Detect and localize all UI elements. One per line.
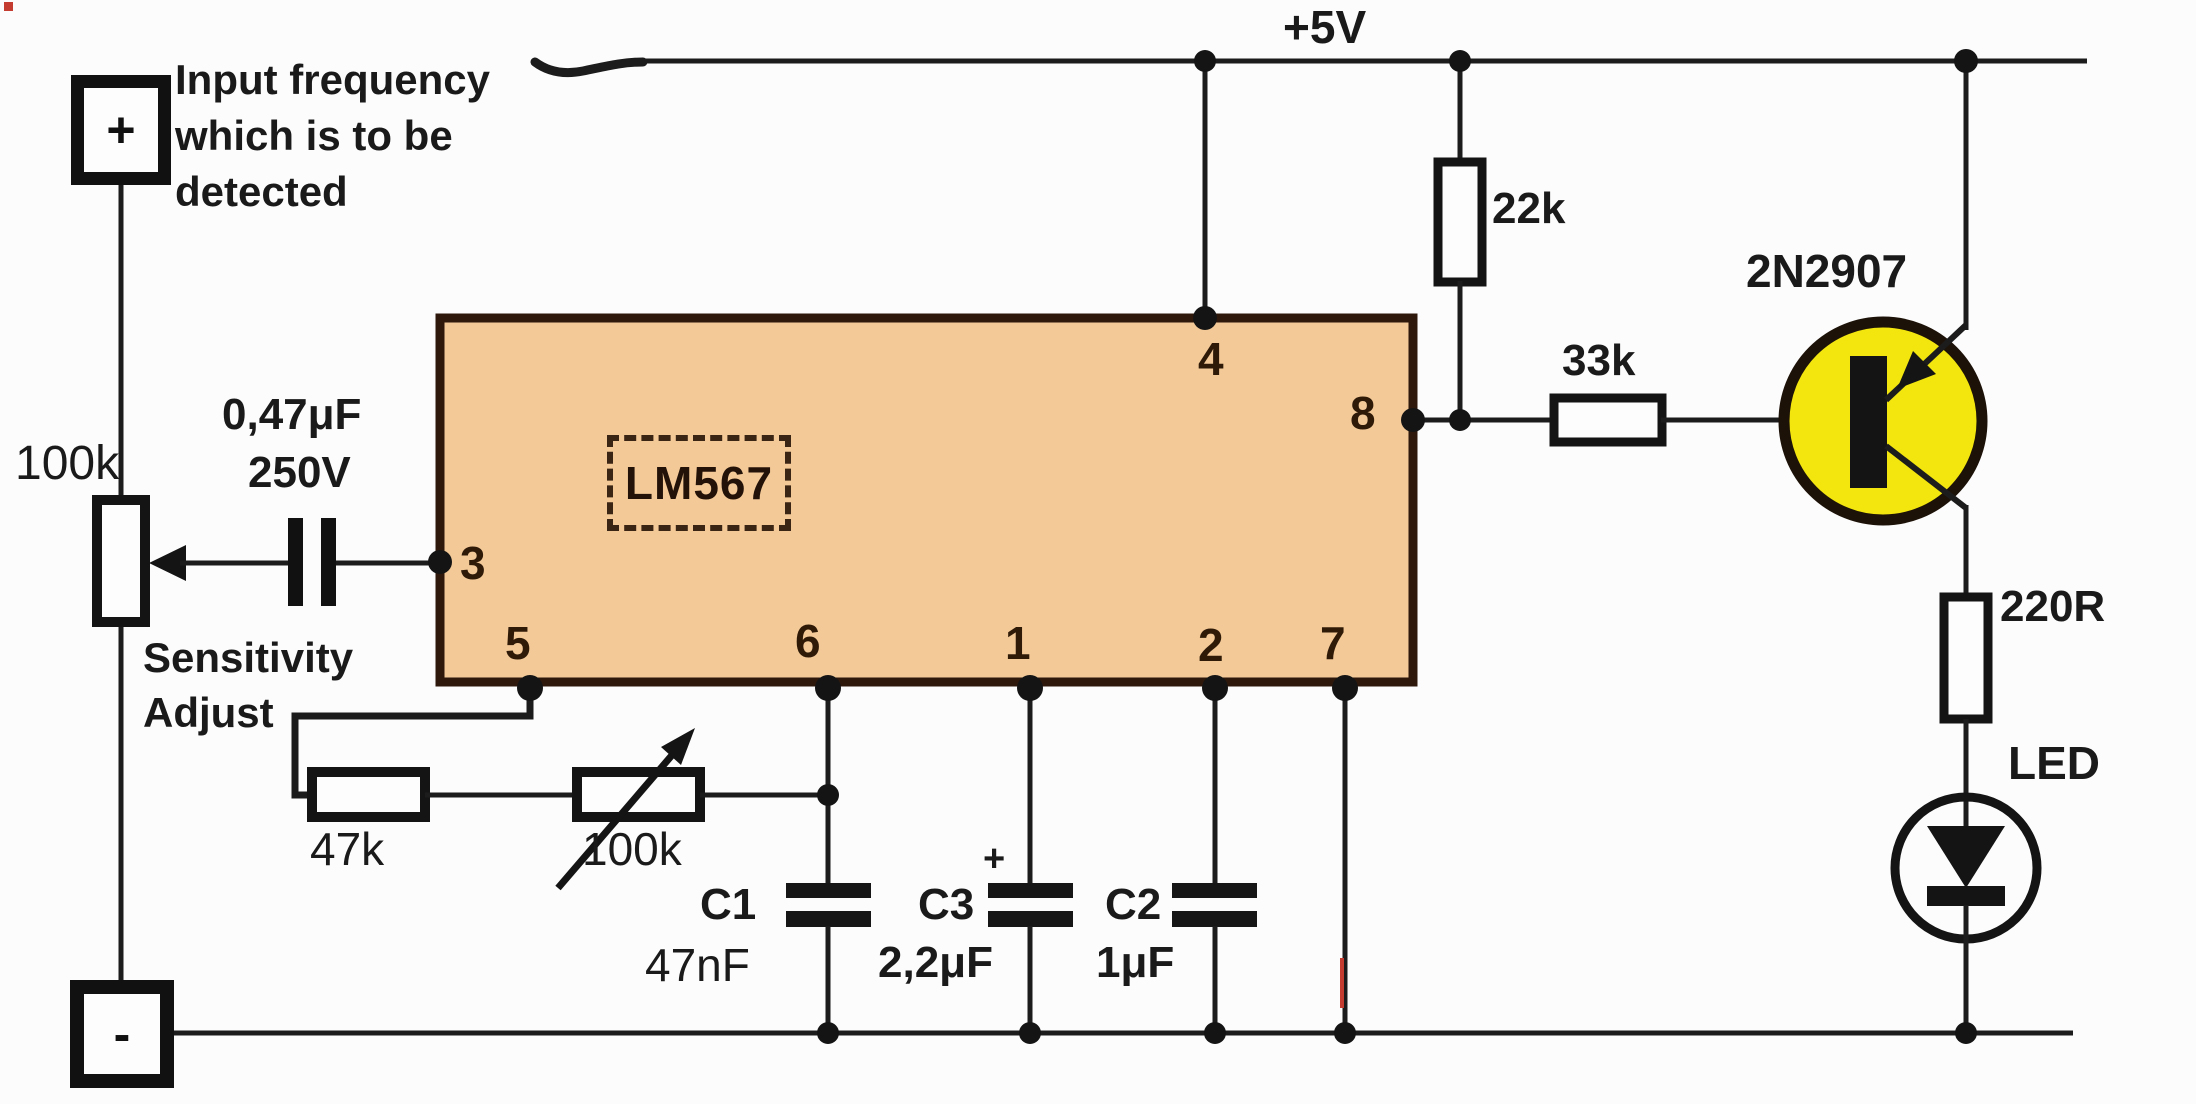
pin-6-label: 6 (795, 614, 821, 668)
minus-sign: - (114, 1005, 131, 1063)
dot-rail-22k (1449, 50, 1471, 72)
c1-name-label: C1 (700, 880, 756, 930)
dot-pin5 (517, 675, 543, 701)
schematic-canvas: + - LM567 Input frequency which is to be… (0, 0, 2196, 1104)
dot-rail-emitter (1954, 49, 1978, 73)
resistor-47k-body (312, 772, 425, 817)
dot-ground-c3 (1019, 1022, 1041, 1044)
c2-value-label: 1μF (1096, 938, 1174, 988)
plus-sign: + (106, 101, 135, 159)
dot-ground-c2 (1204, 1022, 1226, 1044)
dot-22k-33k-junction (1449, 409, 1471, 431)
coupling-cap-voltage-label: 250V (248, 448, 351, 498)
resistor-22k-body (1438, 162, 1482, 282)
dot-ground-led (1955, 1022, 1977, 1044)
input-terminal-negative: - (70, 980, 174, 1088)
led-label: LED (2008, 736, 2100, 790)
r33k-value-label: 33k (1562, 336, 1635, 386)
pin-4-label: 4 (1198, 332, 1224, 386)
dot-pin1 (1017, 675, 1043, 701)
ic-name-box: LM567 (607, 435, 791, 531)
led-cathode-bar (1927, 886, 2005, 906)
rheostat-value-label: 100k (582, 822, 682, 876)
pin-5-label: 5 (505, 616, 531, 670)
potentiometer-body (97, 500, 145, 622)
sensitivity-line2: Adjust (143, 685, 353, 740)
r47k-value-label: 47k (310, 822, 384, 876)
led-anode-triangle (1927, 826, 2005, 888)
c1-value-label: 47nF (645, 938, 750, 992)
c1-plate-top (786, 883, 871, 898)
ic-part-label: LM567 (625, 456, 773, 510)
input-note-line3: detected (175, 164, 490, 220)
dot-ground-pin7 (1334, 1022, 1356, 1044)
pin-1-label: 1 (1005, 616, 1031, 670)
dot-pin3 (428, 550, 452, 574)
dot-pin7 (1332, 675, 1358, 701)
c3-plate-bottom (988, 911, 1073, 927)
transistor-part-label: 2N2907 (1746, 244, 1907, 298)
sensitivity-note: Sensitivity Adjust (143, 630, 353, 740)
c2-name-label: C2 (1105, 880, 1161, 930)
pin-8-label: 8 (1350, 386, 1376, 440)
input-note-line1: Input frequency (175, 52, 490, 108)
coupling-cap-plate-right (321, 518, 336, 606)
pot-value-label: 100k (15, 436, 119, 491)
c3-polarity-label: + (983, 838, 1005, 881)
scan-artifact-dot (4, 2, 13, 11)
input-note: Input frequency which is to be detected (175, 52, 490, 220)
c1-plate-bottom (786, 911, 871, 927)
resistor-33k-body (1554, 398, 1662, 442)
c3-name-label: C3 (918, 880, 974, 930)
dot-pin4 (1193, 306, 1217, 330)
dot-rheostat-junction (817, 784, 839, 806)
pin-3-label: 3 (460, 536, 486, 590)
input-note-line2: which is to be (175, 108, 490, 164)
dot-rail-pin4 (1194, 50, 1216, 72)
dot-pin2 (1202, 675, 1228, 701)
resistor-220r-body (1944, 597, 1988, 719)
pin-2-label: 2 (1198, 618, 1224, 672)
dot-ground-c1 (817, 1022, 839, 1044)
c3-plate-top (988, 883, 1073, 898)
supply-rail-squiggle (535, 62, 643, 73)
c2-plate-bottom (1172, 911, 1257, 927)
dot-pin6 (815, 675, 841, 701)
ic-body (440, 318, 1413, 682)
coupling-cap-value-label: 0,47μF (222, 390, 361, 440)
transistor-base-bar (1850, 356, 1887, 488)
dot-pin8 (1401, 408, 1425, 432)
r220-value-label: 220R (2000, 582, 2105, 632)
c2-plate-top (1172, 883, 1257, 898)
supply-label: +5V (1283, 0, 1366, 54)
pin-7-label: 7 (1320, 616, 1346, 670)
coupling-cap-plate-left (288, 518, 303, 606)
c3-value-label: 2,2μF (878, 938, 993, 988)
r22k-value-label: 22k (1492, 184, 1565, 234)
input-terminal-positive: + (71, 75, 171, 185)
sensitivity-line1: Sensitivity (143, 630, 353, 685)
